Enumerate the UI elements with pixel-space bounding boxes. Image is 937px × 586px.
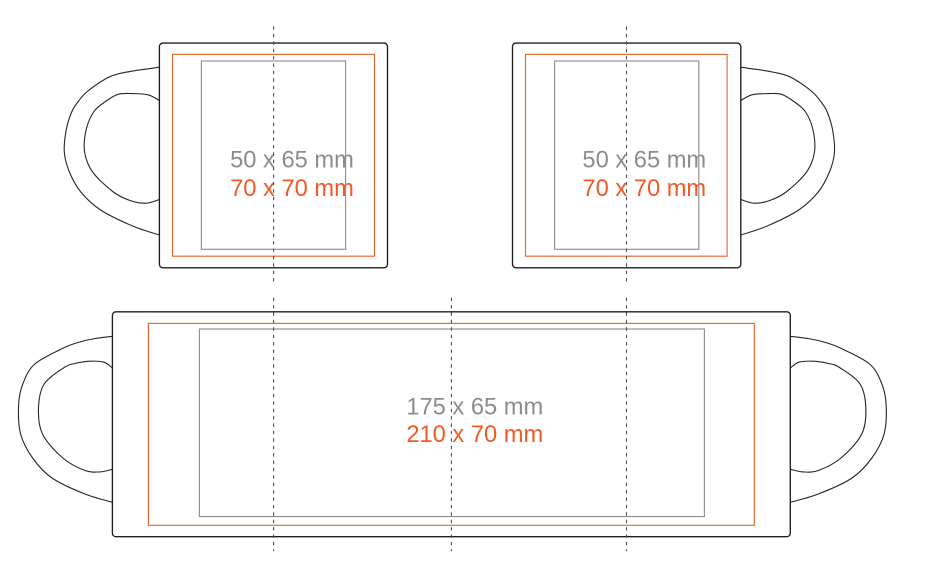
svg-text:50 x 65 mm: 50 x 65 mm: [582, 147, 706, 173]
svg-text:210 x 70 mm: 210 x 70 mm: [406, 422, 543, 448]
svg-text:70 x 70 mm: 70 x 70 mm: [582, 176, 706, 202]
svg-text:50 x 65 mm: 50 x 65 mm: [230, 147, 354, 173]
svg-text:70 x 70 mm: 70 x 70 mm: [230, 176, 354, 202]
svg-text:175 x 65 mm: 175 x 65 mm: [406, 394, 543, 420]
